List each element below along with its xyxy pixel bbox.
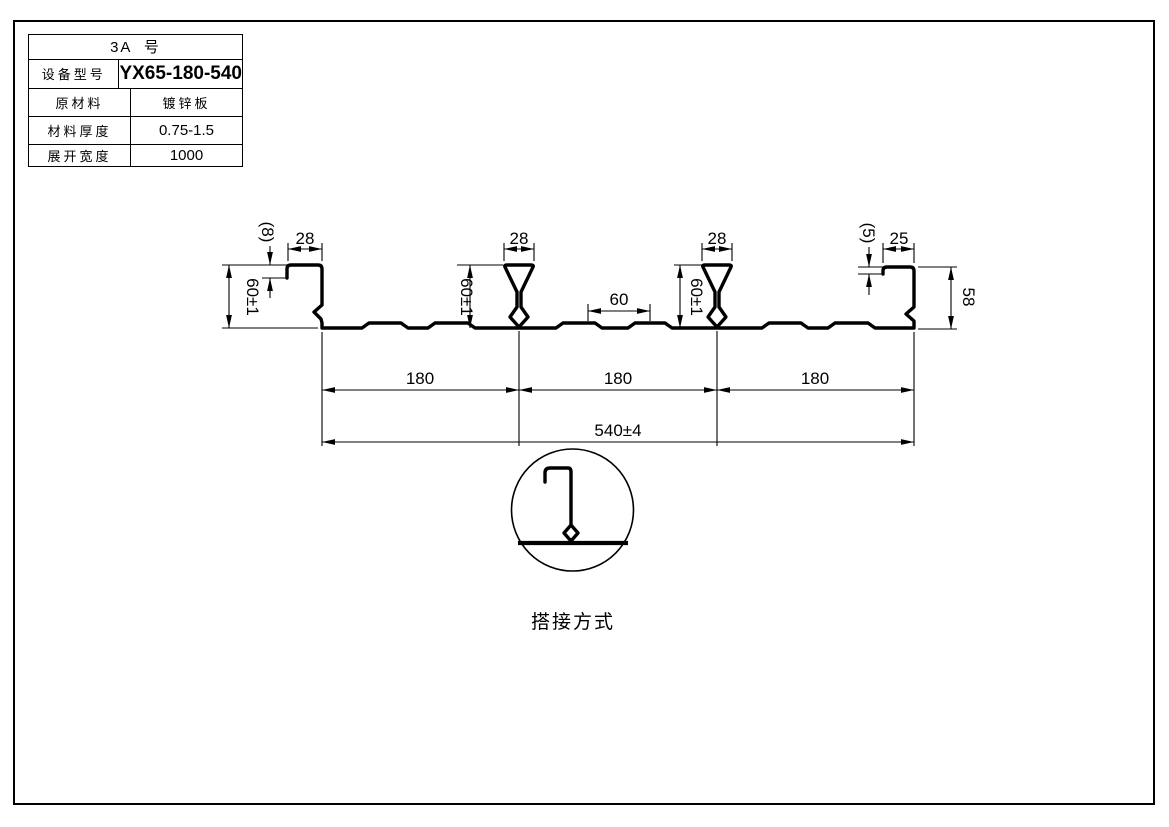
dim-text-rib1-height: 60±1: [457, 278, 476, 316]
dim-text-rib1-width: 28: [510, 229, 529, 248]
dim-text-rib2-height: 60±1: [687, 278, 706, 316]
detail-diamond: [564, 525, 578, 541]
dim-left-lip-return: [262, 246, 287, 298]
profile-geometry: [287, 265, 914, 328]
profile-drawing: 28 (8) 60±1 28 60±1 60 28 60±1 (5) 25 58…: [0, 0, 1169, 827]
dim-text-module-3: 180: [801, 369, 829, 388]
drawing-sheet: 3A 号 设备型号 YX65-180-540 原材料 镀锌板 材料厚度 0.75…: [0, 0, 1169, 827]
dim-text-module-1: 180: [406, 369, 434, 388]
dim-text-left-height: 60±1: [243, 278, 262, 316]
lap-joint-detail: 搭接方式: [512, 449, 634, 633]
dim-text-right-lip: 25: [890, 229, 909, 248]
profile-sheet: [287, 265, 914, 328]
profile-rib-1: [505, 265, 534, 327]
dim-text-left-return: (8): [258, 222, 277, 243]
dim-text-rib2-width: 28: [708, 229, 727, 248]
profile-rib-2: [703, 265, 732, 327]
dim-text-overall: 540±4: [594, 421, 641, 440]
dim-text-left-lip: 28: [296, 229, 315, 248]
dim-right-lip-return: [858, 247, 883, 295]
dim-text-mid-groove: 60: [610, 290, 629, 309]
dim-text-right-return: (5): [859, 223, 878, 244]
dimension-lines: [222, 243, 957, 446]
dim-text-right-height: 58: [959, 288, 978, 307]
detail-hook: [545, 468, 571, 525]
dim-text-module-2: 180: [604, 369, 632, 388]
detail-caption: 搭接方式: [531, 611, 615, 633]
dimension-texts: 28 (8) 60±1 28 60±1 60 28 60±1 (5) 25 58…: [243, 222, 978, 440]
dim-right-height: [918, 267, 957, 329]
